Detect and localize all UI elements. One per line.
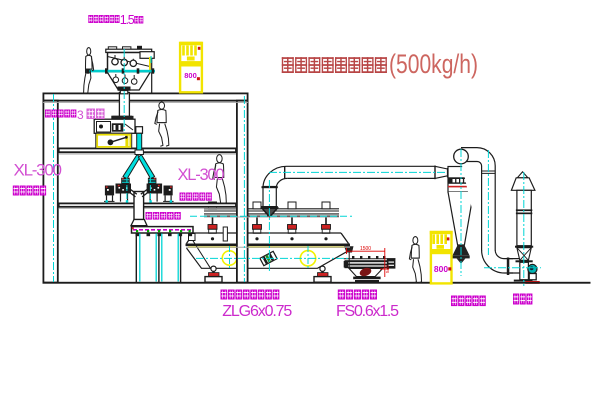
svg-text:540: 540 <box>385 265 390 273</box>
svg-text:FS0.6x1.5: FS0.6x1.5 <box>336 303 399 320</box>
svg-text:ZLG6x0.75: ZLG6x0.75 <box>222 303 292 320</box>
svg-text:(500kg/h): (500kg/h) <box>389 49 478 79</box>
svg-text:1.5: 1.5 <box>120 13 135 27</box>
svg-text:800: 800 <box>184 71 197 80</box>
svg-text:800: 800 <box>434 264 448 274</box>
svg-text:XL-300: XL-300 <box>178 166 225 184</box>
svg-text:3: 3 <box>77 108 84 122</box>
svg-text:XL-300: XL-300 <box>14 161 63 180</box>
svg-text:1500: 1500 <box>360 246 371 252</box>
